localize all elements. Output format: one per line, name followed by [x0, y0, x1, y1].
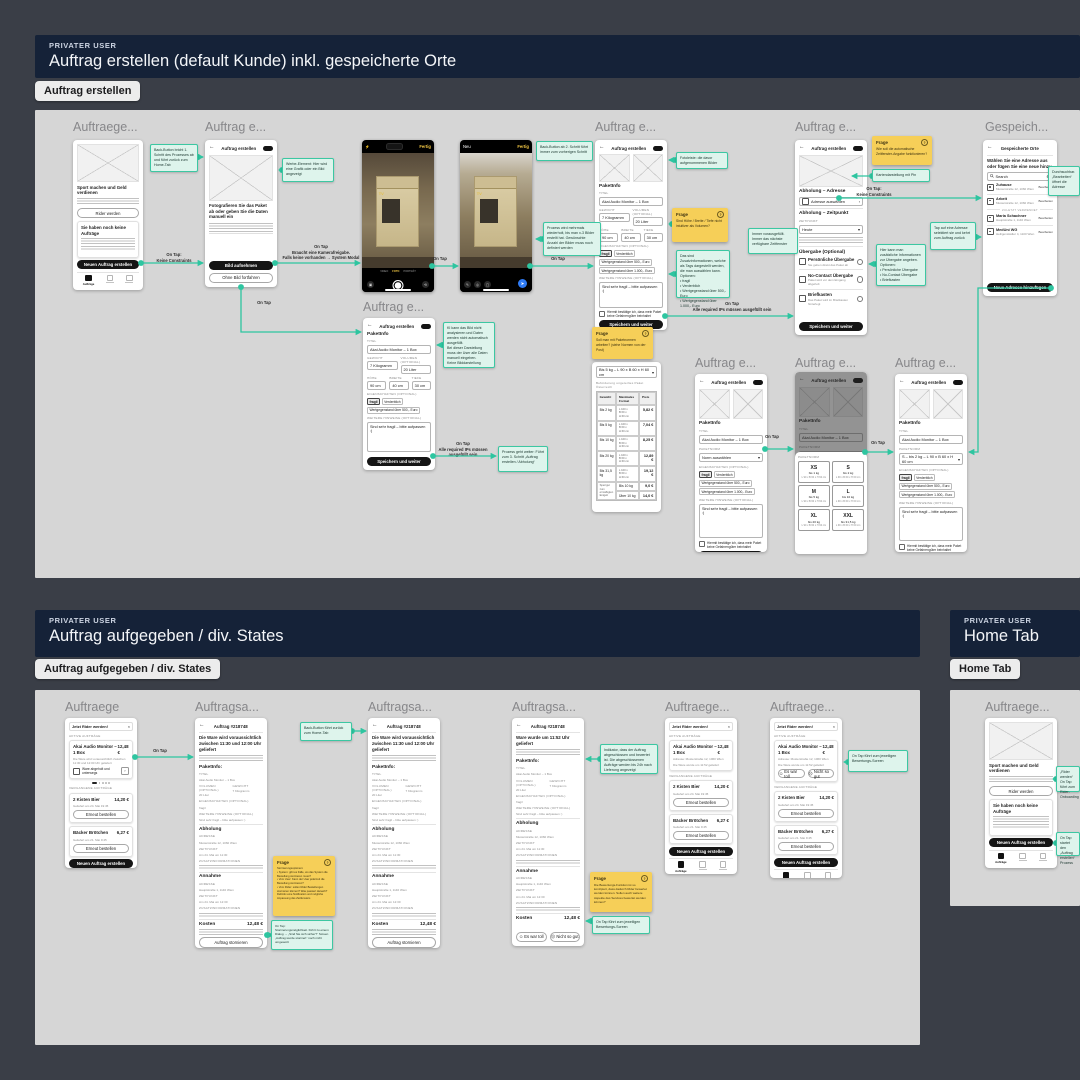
frame-title[interactable]: Auftrag e...	[895, 356, 956, 370]
gefahrengut-checkbox[interactable]: Hiermit bestätige ich, dass mein Paket k…	[699, 541, 763, 549]
screen-paketinfo-photos[interactable]: ←Auftrag erstellen PaketInfo TITEL Akai …	[595, 140, 667, 330]
chip-verderblich[interactable]: Verderblich	[714, 471, 736, 478]
frame-title[interactable]: Auftragsa...	[512, 700, 576, 714]
chip-wert1000[interactable]: Wertgegenstand über 1.000,- Euro	[699, 488, 755, 495]
tab-item[interactable]	[824, 872, 832, 878]
tab-item[interactable]	[719, 861, 727, 873]
search-input[interactable]: Search ⚙	[987, 172, 1053, 181]
eigenschaften-chips: fragil Verderblich Wertgegenstand über 5…	[699, 471, 763, 495]
search-icon	[990, 174, 994, 178]
tab-auftraege[interactable]: Aufträge	[780, 872, 792, 878]
field-label: TIEFE	[412, 376, 431, 380]
image-placeholder	[989, 722, 1053, 760]
note-rider-onboarding[interactable]: „Rider werden“ On Tap führt zum Rider-On…	[1056, 766, 1080, 792]
image-placeholder	[209, 155, 273, 201]
paketnorm-bottom-sheet[interactable]: PAKETNORM XSbis 1 kgL 90 x B 60 x H 60 c…	[795, 452, 867, 554]
norm-dropdown[interactable]: Bis 5 kg – L 90 x B 60 x H 60 cm▾	[596, 366, 657, 378]
connector-label: On Tap	[864, 440, 892, 446]
back-icon[interactable]: ←	[367, 323, 373, 329]
note-indikator[interactable]: Indikator, dass der Auftrag abgeschlosse…	[600, 744, 658, 774]
mailbox-icon	[799, 295, 806, 302]
tab-auftraege[interactable]: Aufträge	[675, 861, 687, 873]
checkbox-icon[interactable]	[699, 541, 705, 547]
sticky-frage-stornierung[interactable]: Frage? Stornierungsoptionen: • System: g…	[273, 856, 335, 916]
fertig-button[interactable]: Fertig	[517, 144, 529, 149]
divider-zuletzt: ZULETZT VERWENDET	[987, 208, 1053, 212]
tab-icon	[85, 275, 92, 282]
address-item-maria[interactable]: Maria SchachnerHauptstraße 1, 1140 WienB…	[987, 214, 1053, 222]
field-label: BREITE	[389, 376, 408, 380]
hinweise-textarea[interactable]: Sind sehr fragil – bitte aufpassen :)	[367, 422, 431, 452]
screen-paketnorm-empty[interactable]: ←Auftrag erstellen PaketInfo TITEL Akai …	[695, 374, 767, 552]
adjust-icon[interactable]: ◎	[474, 281, 481, 288]
section1-tag[interactable]: Auftrag erstellen	[35, 81, 140, 101]
back-icon[interactable]: ←	[699, 379, 705, 385]
screen-paketnorm-selected[interactable]: ←Auftrag erstellen PaketInfo TITEL Akai …	[895, 374, 967, 552]
neuer-auftrag-button[interactable]: Neuen Auftrag erstellen	[669, 847, 733, 856]
note-adresse-select[interactable]: Tap auf eine Adresse selektiert sie und …	[930, 222, 976, 250]
tab-item[interactable]	[1039, 853, 1047, 865]
frame-title[interactable]: Auftrag e...	[795, 120, 856, 134]
section-heading: PaketInfo	[899, 421, 963, 426]
intro-text: Wählen Sie eine Adresse aus oder fügen S…	[987, 158, 1053, 169]
zeitpunkt-select[interactable]: Heute▾	[799, 225, 863, 234]
chip-verderblich[interactable]: Verderblich	[914, 474, 936, 481]
neuer-auftrag-button[interactable]: Neuen Auftrag erstellen	[69, 859, 133, 868]
neu-label[interactable]: Neu	[463, 144, 471, 149]
field-label: VOLUMEN (OPTIONAL)	[401, 356, 432, 364]
volumen-input[interactable]: 20 Liter	[633, 217, 664, 226]
chip-verderblich[interactable]: Verderblich	[614, 250, 636, 257]
close-icon[interactable]: ×	[728, 724, 730, 729]
hinweise-textarea[interactable]: Sind sehr fragil – bitte aufpassen :)	[599, 282, 663, 308]
tab-bar[interactable]: Aufträge	[669, 858, 733, 873]
tab-item[interactable]	[699, 861, 707, 873]
frame-title[interactable]: Auftraege...	[985, 700, 1050, 714]
connector-label: On Tap Braucht eine Kamerafreigabe. Fall…	[282, 244, 360, 261]
past-order-card[interactable]: 2 Kisten Bier14,20 € Geliefert am 24. Ma…	[774, 791, 838, 822]
screen-foto-intro[interactable]: ←Auftrag erstellen Fotografieren Sie das…	[205, 140, 277, 287]
help-pill[interactable]	[653, 146, 663, 151]
note-bewertung-screen[interactable]: On Tap führt zum jeweiligen Bewertungs-S…	[592, 916, 650, 934]
text-lines	[199, 865, 263, 869]
truck-icon	[73, 768, 80, 775]
section-heading: Übergabe (Optional)	[799, 250, 863, 255]
text-lines	[199, 913, 263, 917]
size-xxl[interactable]: XXLbis 31,5 kgL 90 x B 60 x H 60 cm	[832, 509, 864, 531]
screen-orders-delivered[interactable]: Jetzt Rider werden!× AKTIVE AUFTRÄGE Aka…	[665, 718, 737, 874]
note-fotoleiste[interactable]: Fotoleiste: die davor aufgenommenen Bild…	[676, 152, 728, 169]
neuer-auftrag-button[interactable]: Neuen Auftrag erstellen	[77, 260, 139, 269]
screen-paketinfo-manual[interactable]: ←Auftrag erstellen PaketInfo TITEL Akai …	[363, 318, 435, 470]
back-icon[interactable]: ←	[199, 723, 205, 729]
note-stornierung[interactable]: On Tap: Stornierungsmöglichkeit. Führt z…	[271, 920, 333, 950]
frame-title[interactable]: Auftraege...	[73, 120, 138, 134]
tab-auftraege[interactable]: Aufträge	[995, 853, 1007, 865]
tab-auftraege[interactable]: Aufträge	[83, 275, 95, 287]
back-icon[interactable]: ←	[209, 145, 215, 151]
tab-bar[interactable]: Aufträge	[774, 869, 838, 878]
note-start-prozess[interactable]: On Tap startet den „Auftrag erstellen“ P…	[1056, 832, 1080, 856]
note-back-home[interactable]: Back-Button führt zurück zum Home-Tab	[300, 722, 352, 741]
list-label: AKTIVE AUFTRÄGE	[774, 734, 838, 738]
hoehe-input[interactable]: 90 cm	[367, 381, 386, 390]
text-lines	[516, 860, 580, 864]
address-item-zuhause[interactable]: ZuhauseMusterstraße 12, 1060 WienBearbei…	[987, 183, 1053, 191]
text-lines	[372, 913, 436, 917]
note-werbe-element[interactable]: Werbe-Element: Hier wird eine Grafik ode…	[282, 158, 334, 182]
text-lines	[199, 755, 263, 763]
chip-wert500[interactable]: Wertgegenstand über 500,- Euro	[367, 407, 420, 414]
past-order-card[interactable]: Bäcker Brötchen6,27 € Geliefert am 21. M…	[669, 814, 733, 845]
camera-review-screen[interactable]: NeuFertig TV ✎ ◎ ▢ ➤	[460, 140, 532, 292]
bearbeiten-link[interactable]: Bearbeiten	[1038, 230, 1053, 234]
note-back-button-step[interactable]: Back-Button ab 2. Schritt führt immer zu…	[536, 141, 593, 161]
sticky-frage-paketnorm[interactable]: Frage? Soll man mit Paketnormen arbeiten…	[592, 327, 653, 359]
help-pill[interactable]	[421, 324, 431, 329]
crop-icon[interactable]: ▢	[484, 281, 491, 288]
chip-fragil[interactable]: fragil	[367, 398, 380, 405]
back-icon[interactable]: ←	[799, 145, 805, 151]
back-icon[interactable]: ←	[987, 145, 993, 151]
field-label: WEITERE HINWEISE (OPTIONAL)	[599, 276, 663, 280]
text-lines	[372, 929, 436, 935]
help-pill[interactable]	[953, 380, 963, 385]
speichern-button[interactable]: Speichern und weiter	[367, 457, 431, 466]
note-bewertung-screen[interactable]: On Tap führt zum jeweiligen Bewertungs-S…	[848, 750, 908, 772]
rate-good-button[interactable]: ☺Es war toll	[778, 769, 805, 778]
norm-select[interactable]: Norm auswählen▾	[699, 453, 763, 462]
field-label: GEWICHT	[599, 208, 630, 212]
titel-input[interactable]: Akai Audio Monitor – 1 Box	[599, 197, 663, 206]
breite-input[interactable]: 40 cm	[389, 381, 408, 390]
screen-gespeicherte-orte[interactable]: ←Gespeicherte Orte Wählen Sie eine Adres…	[983, 140, 1057, 296]
erneut-bestellen-button[interactable]: Erneut bestellen	[73, 810, 129, 819]
rate-bad-button[interactable]: ☹Nicht so gut	[808, 769, 835, 778]
screen-order-detail[interactable]: ←Auftrag #218748 Die Ware wird voraussic…	[368, 718, 440, 948]
hero-heading: Sport machen und Geld verdienen	[989, 763, 1053, 774]
checkbox-icon[interactable]	[599, 311, 605, 317]
bild-aufnehmen-button[interactable]: Bild aufnehmen	[209, 261, 273, 270]
caret-down-icon: ▾	[858, 227, 860, 232]
chip-wert1000[interactable]: Wertgegenstand über 1.000,- Euro	[899, 491, 955, 498]
back-icon[interactable]: ←	[899, 379, 905, 385]
field-label: TITEL	[699, 429, 763, 433]
back-icon[interactable]: ←	[372, 723, 378, 729]
speichern-button[interactable]: Speichern und weiter	[799, 322, 863, 331]
photo-thumb[interactable]	[899, 389, 930, 419]
carousel-dots	[69, 782, 133, 784]
tiefe-input[interactable]: 30 cm	[644, 233, 663, 242]
option-persoenlich[interactable]: Persönliche ÜbergabeSie geben direkt das…	[799, 257, 863, 267]
rate-good-button[interactable]: ☺Es war toll	[516, 932, 547, 943]
note-prozess-wiederholt[interactable]: Prozess wird mehrmals wiederholt, bis ma…	[543, 222, 601, 256]
frame-title[interactable]: Auftraege...	[665, 700, 730, 714]
field-label: HÖHE	[367, 376, 386, 380]
gewicht-input[interactable]: 7 Kilogramm	[367, 361, 398, 370]
frame-title[interactable]: Auftrag e...	[363, 300, 424, 314]
chip-wert500[interactable]: Wertgegenstand über 500,- Euro	[699, 480, 752, 487]
active-order-card[interactable]: Akai Audio Monitor – 1 Box12,48 € Adress…	[774, 740, 838, 782]
tab-item[interactable]	[804, 872, 812, 878]
note-back-button-home[interactable]: Back-Button bricht 1. Schritt des Prozes…	[150, 144, 198, 172]
connector-label: On Tap	[544, 256, 572, 262]
stornieren-button[interactable]: Auftrag stornieren	[199, 937, 263, 948]
frame-title[interactable]: Auftrag e...	[695, 356, 756, 370]
titel-input[interactable]: Akai Audio Monitor – 1 Box	[699, 435, 763, 444]
size-xl[interactable]: XLbis 20 kgL 90 x B 60 x H 60 cm	[798, 509, 830, 531]
section2-eyebrow: PRIVATER USER	[49, 616, 906, 625]
photo-thumb[interactable]	[633, 154, 664, 182]
section2-tag[interactable]: Auftrag aufgegeben / div. States	[35, 659, 220, 679]
rider-werden-button[interactable]: Rider werden	[989, 786, 1053, 797]
hinweise-textarea[interactable]: Sind sehr fragil – bitte aufpassen :)	[899, 507, 963, 541]
rider-werden-button[interactable]: Rider werden	[77, 208, 139, 219]
list-label: VERGANGENE AUFTRÄGE	[669, 774, 733, 778]
address-item-meduni[interactable]: MedUni WGHeiligenstädter 4, 1100 WienBea…	[987, 228, 1053, 236]
section-heading: Abholung	[516, 821, 580, 826]
help-pill[interactable]	[753, 380, 763, 385]
chip-wert500[interactable]: Wertgegenstand über 500,- Euro	[899, 483, 952, 490]
note-prozess-weiter[interactable]: Prozess geht weiter: Führt zum 3. Schrit…	[498, 446, 548, 472]
hinweise-textarea[interactable]: Sind sehr fragil – bitte aufpassen :)	[699, 504, 763, 538]
bearbeiten-link[interactable]: Bearbeiten	[1038, 199, 1053, 203]
checkbox-icon[interactable]	[899, 544, 905, 550]
speichern-button[interactable]: Speichern und weiter	[699, 551, 763, 552]
pin-icon	[987, 184, 994, 191]
pin-icon	[987, 228, 994, 235]
address-item-arbeit[interactable]: ArbeitMusterstraße 12, 1060 WienBearbeit…	[987, 197, 1053, 205]
frame-title[interactable]: Auftraege...	[770, 700, 835, 714]
back-icon[interactable]: ←	[599, 145, 605, 151]
appbar-title: Auftrag erstellen	[907, 380, 952, 385]
screen-paketnorm-sheet[interactable]: ←Auftrag erstellen PaketInfo TITEL Akai …	[795, 372, 867, 554]
note-zusatzinfo-tags[interactable]: Das sind Zusatzinformationen, welche als…	[676, 250, 730, 298]
field-label: EIGENSCHAFTEN (OPTIONAL)	[367, 392, 431, 396]
titel-input[interactable]: Akai Audio Monitor – 1 Box	[899, 435, 963, 444]
camera-photo-preview: TV	[362, 153, 434, 268]
tab-icon	[107, 275, 114, 282]
neuer-auftrag-button[interactable]: Neuen Auftrag erstellen	[989, 838, 1053, 847]
volumen-input[interactable]: 20 Liter	[401, 365, 432, 374]
active-order-card[interactable]: Akai Audio Monitor – 1 Box12,48 € Die Wa…	[69, 740, 133, 779]
frame-title[interactable]: Auftrag e...	[595, 120, 656, 134]
chip-wert500[interactable]: Wertgegenstand über 500,- Euro	[599, 259, 652, 266]
chip-fragil[interactable]: fragil	[899, 474, 912, 481]
field-label: PAKETNORM	[699, 447, 763, 451]
list-label: VERGANGENE AUFTRÄGE	[69, 786, 133, 790]
radio-icon[interactable]	[857, 296, 864, 303]
section-heading: Annahme	[516, 869, 580, 874]
field-label: WEITERE HINWEISE (OPTIONAL)	[367, 416, 431, 420]
gallery-icon[interactable]: ▣	[367, 281, 374, 288]
neue-adresse-button[interactable]: Neue Adresse hinzufügen	[987, 283, 1053, 292]
text-lines	[209, 223, 273, 234]
connector-label: On Tap: Keine Constraints	[848, 186, 900, 197]
section1-header[interactable]: PRIVATER USER Auftrag erstellen (default…	[35, 35, 1080, 78]
chip-wert1000[interactable]: Wertgegenstand über 1.000,- Euro	[599, 267, 655, 274]
tab-item[interactable]	[106, 275, 114, 287]
appbar-title: Auftrag #218748	[380, 724, 429, 729]
radio-icon[interactable]	[857, 276, 864, 283]
eigenschaften-chips: fragil Verderblich Wertgegenstand über 5…	[367, 398, 431, 414]
connector-label: On Tap: Keine Constraints	[145, 252, 203, 263]
size-m[interactable]: Mbis 5 kgL 90 x B 60 x H 60 cm	[798, 485, 830, 507]
nocontact-icon	[799, 276, 806, 283]
close-icon[interactable]: ×	[128, 724, 130, 729]
home-indicator	[483, 289, 509, 290]
past-order-card[interactable]: Bäcker Brötchen6,27 € Geliefert am 21. M…	[69, 826, 133, 857]
erneut-bestellen-button[interactable]: Erneut bestellen	[73, 844, 129, 853]
field-label: BREITE	[621, 228, 640, 232]
address-icon	[802, 198, 809, 205]
frame-title[interactable]: Auftrag e...	[795, 356, 856, 370]
field-label: HÖHE	[599, 228, 618, 232]
empty-heading: Sie haben noch keine Aufträge	[81, 225, 135, 236]
rider-banner[interactable]: Jetzt Rider werden!×	[669, 722, 733, 731]
chip-fragil[interactable]: fragil	[699, 471, 712, 478]
question-icon: ?	[642, 330, 649, 337]
breite-input[interactable]: 40 cm	[621, 233, 640, 242]
frame-title[interactable]: Auftragsa...	[368, 700, 432, 714]
tab-item[interactable]	[1019, 853, 1027, 865]
flash-icon[interactable]: ⚡	[365, 145, 369, 149]
erneut-bestellen-button[interactable]: Erneut bestellen	[673, 798, 729, 807]
use-photo-button[interactable]: ➤	[518, 279, 527, 288]
smile-icon: ☺	[779, 771, 783, 776]
mode-foto[interactable]: FOTO	[392, 270, 399, 273]
section-heading: PaketInfo	[599, 184, 663, 189]
screen-orders-rating[interactable]: Jetzt Rider werden!× AKTIVE AUFTRÄGE Aka…	[770, 718, 842, 878]
close-icon[interactable]: ×	[833, 724, 835, 729]
camera-viewfinder-screen[interactable]: ⚡Fertig TV VIDEOFOTOPORTRÄT ▣ ⟲	[362, 140, 434, 292]
photo-thumb[interactable]	[933, 389, 964, 419]
tab-bar[interactable]: Aufträge	[989, 850, 1053, 865]
delivery-heading: Die Ware wird voraussichtlich zwischen 1…	[372, 735, 436, 752]
sticky-frage-bewertung[interactable]: Frage? Die Bewertungs-Funktion ist so ko…	[590, 872, 652, 912]
sticky-frage-zeitfenster[interactable]: Frage? Wie soll die automatische Zeitfen…	[872, 136, 932, 165]
tab-bar[interactable]: Aufträge	[77, 272, 139, 287]
tab-item[interactable]	[125, 275, 133, 287]
sticky-frage-volumen[interactable]: Frage? Sind Höhe / Breite / Tiefe nicht …	[672, 208, 728, 242]
past-order-card[interactable]: 2 Kisten Bier14,20 € Geliefert am 24. Ma…	[69, 793, 133, 824]
size-s[interactable]: Sbis 2 kgL 90 x B 60 x H 60 cm	[832, 461, 864, 483]
note-kartendarstellung[interactable]: Kartendarstellung mit Pin	[872, 169, 930, 182]
field-label: PAKETNORM	[899, 447, 963, 451]
dynamic-island	[386, 143, 403, 150]
screen-home-empty[interactable]: Sport machen und Geld verdienen Rider we…	[985, 718, 1057, 868]
sheet-label: PAKETNORM	[798, 455, 864, 459]
price-table: GewichtMaximales FormatPreis Bis 2 kgL 1…	[596, 391, 657, 501]
paketnorm-reference-frame[interactable]: Bis 5 kg – L 90 x B 60 x H 60 cm▾ Beförd…	[592, 362, 661, 512]
titel-input[interactable]: Akai Audio Monitor – 1 Box	[367, 345, 431, 354]
neuer-auftrag-button[interactable]: Neuen Auftrag erstellen	[774, 858, 838, 867]
delivered-heading: Ware wurde um 11:52 Uhr geliefert	[516, 735, 580, 746]
photo-thumb[interactable]	[699, 389, 730, 419]
screen-abholung[interactable]: ←Auftrag erstellen Abholung – Adresse Ad…	[795, 140, 867, 335]
text-lines	[199, 929, 263, 935]
erneut-bestellen-button[interactable]: Erneut bestellen	[673, 831, 729, 840]
frame-title[interactable]: Auftragsa...	[195, 700, 259, 714]
smile-icon: ☺	[519, 934, 523, 939]
expand-button[interactable]: ›	[121, 767, 129, 775]
norm-select[interactable]: S – bis 2 kg – L 90 x B 60 x H 60 cm▾	[899, 453, 963, 465]
erneut-bestellen-button[interactable]: Erneut bestellen	[778, 809, 834, 818]
hoehe-input[interactable]: 90 cm	[599, 233, 618, 242]
rider-banner[interactable]: Jetzt Rider werden!×	[774, 722, 838, 731]
gewicht-input[interactable]: 7 Kilogramm	[599, 213, 630, 222]
radio-icon[interactable]	[857, 259, 864, 266]
note-durchsuchbar[interactable]: Durchsuchbar. „Bearbeiten“ öffnet die Ad…	[1048, 166, 1080, 196]
screen-order-detail[interactable]: ←Auftrag #218748 Die Ware wird voraussic…	[195, 718, 267, 948]
appbar-title: Gespeicherte Orte	[995, 146, 1046, 151]
flip-camera-icon[interactable]: ⟲	[422, 281, 429, 288]
option-briefkasten[interactable]: BriefkastenDas Paket wird im Briefkasten…	[799, 292, 863, 306]
section-heading: Abholung – Zeitpunkt	[799, 211, 863, 216]
size-l[interactable]: Lbis 10 kgL 90 x B 60 x H 60 cm	[832, 485, 864, 507]
chip-verderblich[interactable]: Verderblich	[382, 398, 404, 405]
tiefe-input[interactable]: 30 cm	[412, 381, 431, 390]
past-order-card[interactable]: 2 Kisten Bier14,20 € Geliefert am 24. Ma…	[669, 780, 733, 811]
appbar-title: Auftrag erstellen	[217, 146, 262, 151]
ohne-bild-button[interactable]: Ohne Bild fortfahren	[209, 273, 273, 284]
size-xs[interactable]: XSbis 1 kgL 90 x B 60 x H 60 cm	[798, 461, 830, 483]
active-order-card[interactable]: Akai Audio Monitor – 1 Box12,48 € Adress…	[669, 740, 733, 771]
section3-title: Home Tab	[964, 627, 1066, 646]
frame-title[interactable]: Auftraege	[65, 700, 119, 714]
stornieren-button[interactable]: Auftrag stornieren	[372, 937, 436, 948]
back-icon[interactable]: ←	[516, 723, 522, 729]
field-label: TITEL	[599, 191, 663, 195]
frame-title[interactable]: Auftrag e...	[205, 120, 266, 134]
photo-thumb[interactable]	[599, 154, 630, 182]
help-pill[interactable]	[853, 146, 863, 151]
screen-home-empty[interactable]: Sport machen und Geld verdienen Rider we…	[73, 140, 143, 290]
frame-title[interactable]: Gespeich...	[985, 120, 1048, 134]
gefahrengut-checkbox[interactable]: Hiermit bestätige ich, dass mein Paket k…	[899, 544, 963, 552]
past-order-card[interactable]: Bäcker Brötchen6,27 € Geliefert am 21. M…	[774, 825, 838, 856]
section3-eyebrow: PRIVATER USER	[964, 616, 1066, 625]
note-ki-analyse[interactable]: KI kann das Bild nicht analysieren und D…	[443, 322, 495, 368]
appbar-title: Auftrag erstellen	[607, 146, 652, 151]
edit-icon[interactable]: ✎	[464, 281, 471, 288]
note-uebergabe-optionen[interactable]: Hier kann man zusätzliche Informationen …	[876, 244, 926, 286]
section3-header[interactable]: PRIVATER USER Home Tab	[950, 610, 1080, 657]
erneut-bestellen-button[interactable]: Erneut bestellen	[778, 842, 834, 851]
gefahrengut-checkbox[interactable]: Hiermit bestätige ich, dass mein Paket k…	[599, 310, 663, 318]
package-box: TV	[474, 176, 517, 247]
connector-label: On Tap	[426, 256, 454, 262]
rate-bad-button[interactable]: ☹Nicht so gut	[550, 932, 581, 943]
option-nocontact[interactable]: No-Contact ÜbergabePaket wird vor dem Ei…	[799, 273, 863, 287]
text-lines	[372, 755, 436, 763]
field-label: EIGENSCHAFTEN (OPTIONAL)	[699, 465, 763, 469]
note-vorausgefuellt[interactable]: Immer vorausgefüllt. Immer das nächste v…	[748, 228, 798, 254]
rider-banner[interactable]: Jetzt Rider werden!×	[69, 722, 133, 731]
screen-orders-active[interactable]: Jetzt Rider werden!× AKTIVE AUFTRÄGE Aka…	[65, 718, 137, 868]
section3-tag[interactable]: Home Tab	[950, 659, 1020, 679]
bearbeiten-link[interactable]: Bearbeiten	[1038, 216, 1053, 220]
section2-header[interactable]: PRIVATER USER Auftrag aufgegeben / div. …	[35, 610, 920, 657]
handoff-icon	[799, 258, 806, 265]
photo-thumb[interactable]	[733, 389, 764, 419]
adresse-auswaehlen-row[interactable]: Adresse auswählen›	[799, 197, 863, 206]
image-placeholder	[77, 144, 139, 182]
section-heading: PaketInfo:	[516, 759, 580, 764]
help-pill[interactable]	[263, 146, 273, 151]
fertig-button[interactable]: Fertig	[419, 144, 431, 149]
screen-order-delivered[interactable]: ←Auftrag #218748 Ware wurde um 11:52 Uhr…	[512, 718, 584, 946]
